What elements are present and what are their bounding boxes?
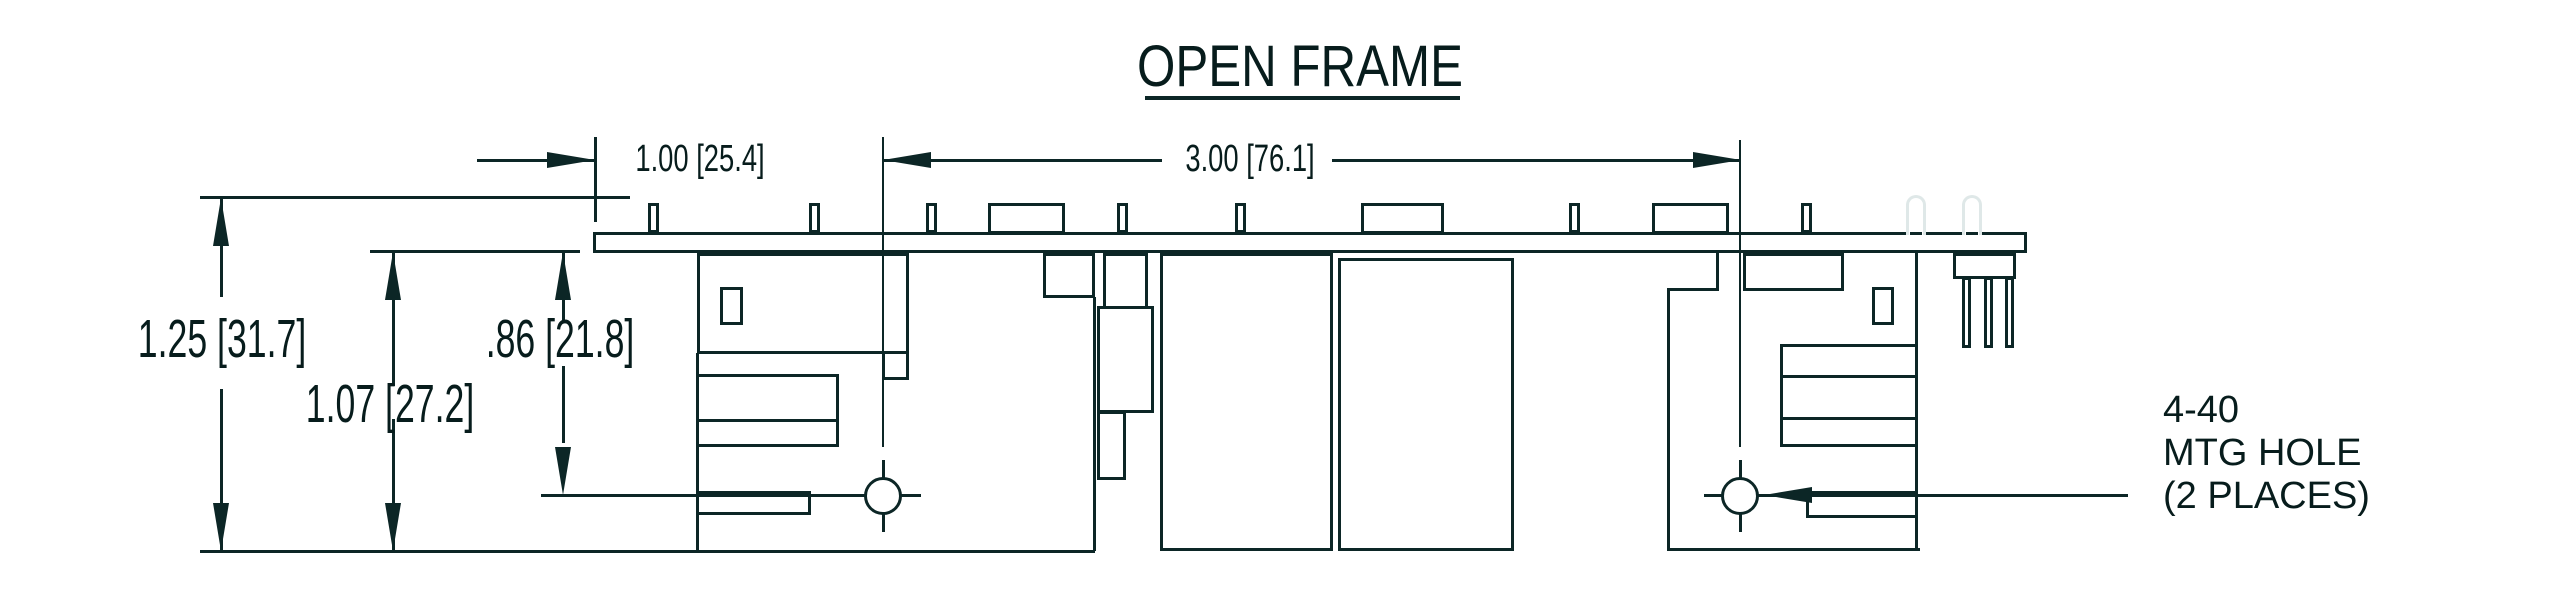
dim-text-3.00: 3.00 [76.1]	[1185, 140, 1314, 178]
pcb-board	[593, 232, 2027, 253]
arrowhead-right	[547, 152, 595, 168]
mounting-hole-right	[1721, 477, 1759, 515]
extension-line-pin-tops	[200, 196, 630, 199]
component	[1743, 253, 1844, 291]
component	[1043, 253, 1095, 298]
extension-line	[594, 137, 597, 222]
left-heatsink-spine	[696, 353, 699, 551]
connector-pin	[1962, 277, 1971, 348]
left-heatsink-component	[720, 287, 743, 325]
board-pin	[1235, 203, 1246, 233]
dimension-line	[1332, 159, 1741, 162]
board-pin	[926, 203, 937, 233]
component	[1103, 253, 1148, 309]
right-heatsink-component	[1872, 287, 1894, 325]
board-pin	[1569, 203, 1580, 233]
left-heatsink-fin-edge	[697, 444, 838, 447]
extension-line-board-bottom	[370, 250, 580, 253]
board-edge-dash	[1966, 232, 1978, 235]
dim-text-1.00: 1.00 [25.4]	[635, 140, 764, 178]
phantom-pin	[1962, 195, 1982, 235]
transformer-block	[1160, 253, 1333, 551]
arrowhead-left	[1764, 487, 1812, 503]
arrowhead-down	[213, 503, 229, 551]
center-line	[1739, 140, 1741, 447]
right-heatsink-bottom	[1668, 548, 1920, 551]
arrowhead-down	[555, 447, 571, 495]
connector-body	[1953, 253, 2016, 279]
open-frame-technical-drawing: OPEN FRAME	[0, 0, 2550, 599]
right-heatsink-fin-edge	[1782, 344, 1918, 347]
mtg-note-line2: MTG HOLE	[2163, 434, 2361, 472]
component	[1097, 306, 1154, 413]
phantom-pin	[1906, 195, 1926, 235]
arrowhead-up	[213, 198, 229, 246]
left-heatsink-fin-edge	[697, 419, 838, 422]
drawing-title: OPEN FRAME	[1137, 38, 1463, 96]
right-heatsink-fin-edge	[1808, 515, 1918, 518]
left-heatsink-fin-edge	[697, 374, 838, 377]
right-heatsink-edge	[1667, 288, 1670, 551]
right-heatsink-fin-edge	[1782, 444, 1918, 447]
center-line	[882, 137, 884, 447]
left-heatsink-tab	[882, 351, 909, 380]
right-heatsink-edge	[1716, 253, 1719, 290]
right-heatsink-fin-edge	[1782, 375, 1918, 378]
dim-text-0.86: .86 [21.8]	[486, 312, 635, 366]
title-underline	[1145, 96, 1460, 100]
connector-pin	[1984, 277, 1993, 348]
right-heatsink-fin-end	[1780, 344, 1783, 447]
component-edge	[1093, 297, 1096, 551]
arrowhead-right	[1693, 152, 1741, 168]
board-edge-dash	[1910, 232, 1922, 235]
board-pin	[1117, 203, 1128, 233]
top-component	[1361, 203, 1444, 234]
mtg-note-line1: 4-40	[2163, 391, 2239, 429]
top-component	[988, 203, 1065, 234]
connector-pin	[2005, 277, 2014, 348]
mtg-note-line3: (2 PLACES)	[2163, 477, 2370, 515]
board-pin	[648, 203, 659, 233]
extension-line-baseline	[200, 550, 1095, 553]
arrowhead-up	[555, 252, 571, 300]
left-heatsink-fin-edge	[697, 512, 810, 515]
right-heatsink-spine	[1915, 253, 1918, 551]
mounting-hole-left	[864, 477, 902, 515]
dim-text-1.25: 1.25 [31.7]	[138, 312, 306, 366]
right-heatsink-fin-edge	[1782, 417, 1918, 420]
arrowhead-up	[385, 252, 401, 300]
left-heatsink-fin-end	[836, 374, 839, 447]
right-heatsink-edge	[1668, 288, 1719, 291]
transformer-block	[1338, 258, 1514, 551]
board-pin	[1801, 203, 1812, 233]
board-pin	[809, 203, 820, 233]
dim-text-1.07: 1.07 [27.2]	[306, 377, 474, 431]
component	[1097, 411, 1126, 480]
dimension-shaft	[562, 366, 565, 443]
arrowhead-down	[385, 503, 401, 551]
top-component	[1652, 203, 1729, 234]
arrowhead-left	[883, 152, 931, 168]
